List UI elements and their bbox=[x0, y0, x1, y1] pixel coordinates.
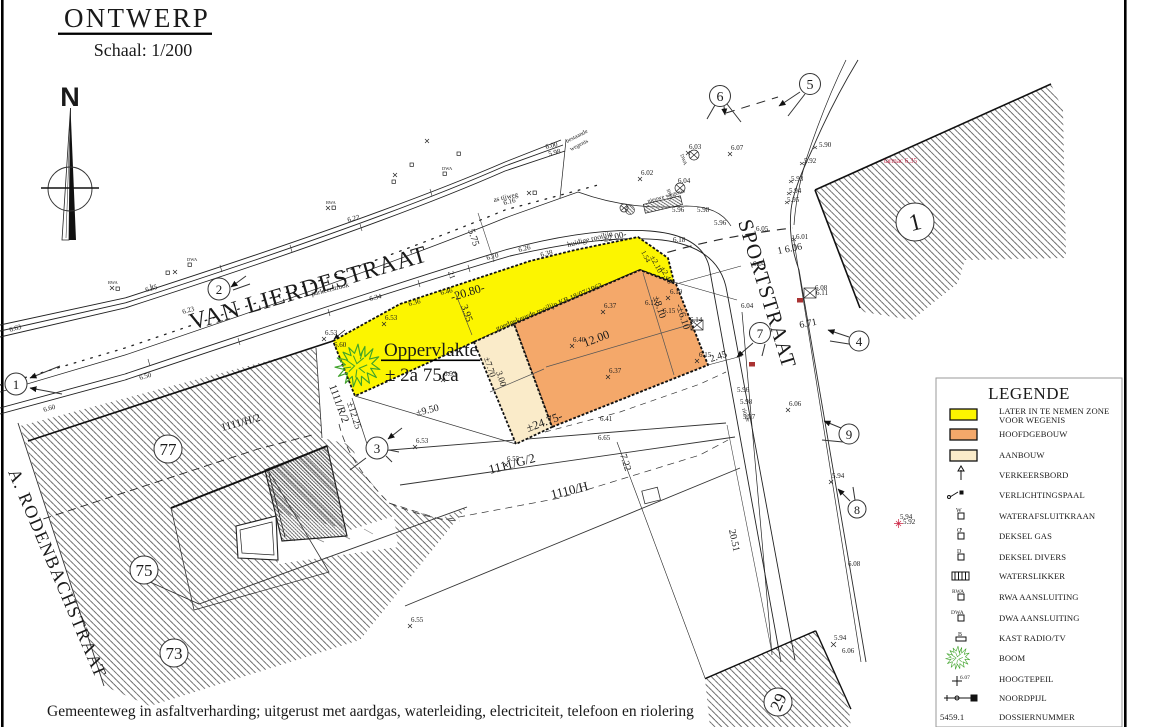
svg-text:RWA AANSLUITING: RWA AANSLUITING bbox=[999, 592, 1079, 602]
svg-text:6.08: 6.08 bbox=[848, 560, 861, 568]
svg-text:B: B bbox=[958, 632, 962, 638]
svg-text:5459.1: 5459.1 bbox=[940, 712, 964, 722]
svg-text:NOORDPIJL: NOORDPIJL bbox=[999, 693, 1047, 703]
svg-text:Gemeenteweg in asfaltverhardin: Gemeenteweg in asfaltverharding; uitgeru… bbox=[47, 703, 694, 720]
svg-text:DWA AANSLUITING: DWA AANSLUITING bbox=[999, 613, 1080, 623]
svg-text:5.94: 5.94 bbox=[832, 472, 845, 480]
svg-text:6.07: 6.07 bbox=[731, 144, 744, 152]
svg-text:HOOGTEPEIL: HOOGTEPEIL bbox=[999, 674, 1053, 684]
svg-text:6.53: 6.53 bbox=[325, 329, 338, 337]
svg-text:5.93: 5.93 bbox=[791, 175, 804, 183]
svg-text:75: 75 bbox=[136, 561, 153, 580]
svg-text:5.94: 5.94 bbox=[834, 634, 847, 642]
svg-text:VOOR WEGENIS: VOOR WEGENIS bbox=[999, 415, 1065, 425]
svg-text:VERLICHTINGSPAAL: VERLICHTINGSPAAL bbox=[999, 490, 1085, 500]
svg-text:77: 77 bbox=[160, 440, 178, 459]
svg-text:6.06: 6.06 bbox=[789, 400, 802, 408]
svg-text:5: 5 bbox=[807, 78, 814, 93]
svg-text:7: 7 bbox=[757, 326, 764, 341]
svg-text:5.96: 5.96 bbox=[672, 206, 685, 214]
svg-text:4: 4 bbox=[856, 334, 863, 349]
svg-text:6.15: 6.15 bbox=[699, 351, 712, 359]
svg-text:6.53: 6.53 bbox=[385, 314, 398, 322]
svg-text:AANBOUW: AANBOUW bbox=[999, 450, 1045, 460]
svg-text:73: 73 bbox=[166, 644, 183, 663]
svg-text:WATERSLIKKER: WATERSLIKKER bbox=[999, 571, 1065, 581]
svg-text:5.96: 5.96 bbox=[737, 386, 750, 394]
svg-text:6.05: 6.05 bbox=[756, 225, 769, 233]
svg-text:6.65: 6.65 bbox=[598, 434, 611, 442]
svg-text:WATERAFSLUITKRAAN: WATERAFSLUITKRAAN bbox=[999, 511, 1096, 521]
svg-text:1: 1 bbox=[13, 377, 20, 392]
svg-text:DEKSEL GAS: DEKSEL GAS bbox=[999, 531, 1052, 541]
svg-text:5.97: 5.97 bbox=[743, 413, 756, 421]
svg-text:DWA: DWA bbox=[951, 610, 964, 616]
svg-text:LEGENDE: LEGENDE bbox=[988, 384, 1070, 403]
svg-text:VERKEERSBORD: VERKEERSBORD bbox=[999, 470, 1068, 480]
svg-text:5.98: 5.98 bbox=[697, 206, 710, 214]
svg-text:5.94: 5.94 bbox=[789, 187, 802, 195]
svg-text:6.37: 6.37 bbox=[604, 302, 617, 310]
svg-text:tarmac 6.35: tarmac 6.35 bbox=[884, 157, 918, 165]
svg-text:Schaal: 1/200: Schaal: 1/200 bbox=[94, 40, 192, 60]
svg-text:DEKSEL DIVERS: DEKSEL DIVERS bbox=[999, 552, 1066, 562]
svg-text:6.55: 6.55 bbox=[411, 616, 424, 624]
svg-text:6.18: 6.18 bbox=[673, 236, 686, 244]
svg-text:6.04: 6.04 bbox=[753, 260, 766, 268]
svg-text:W: W bbox=[956, 508, 962, 514]
svg-text:6.03: 6.03 bbox=[689, 143, 702, 151]
svg-text:5.95: 5.95 bbox=[787, 196, 800, 204]
svg-text:6.15: 6.15 bbox=[663, 307, 676, 315]
svg-text:RWA: RWA bbox=[326, 200, 337, 205]
svg-text:ONTWERP: ONTWERP bbox=[64, 3, 210, 33]
svg-text:6.41: 6.41 bbox=[600, 415, 613, 423]
svg-text:DOSSIERNUMMER: DOSSIERNUMMER bbox=[999, 712, 1075, 722]
svg-text:5.92: 5.92 bbox=[903, 518, 916, 526]
svg-text:6: 6 bbox=[717, 90, 724, 105]
svg-text:3: 3 bbox=[374, 441, 381, 456]
svg-text:5.98: 5.98 bbox=[740, 398, 753, 406]
svg-text:D: D bbox=[957, 549, 962, 555]
svg-text:6.19: 6.19 bbox=[670, 288, 683, 296]
svg-text:KAST RADIO/TV: KAST RADIO/TV bbox=[999, 633, 1066, 643]
svg-text:6.60: 6.60 bbox=[334, 341, 347, 349]
svg-text:BOOM: BOOM bbox=[999, 653, 1025, 663]
svg-text:6.02: 6.02 bbox=[641, 169, 654, 177]
svg-text:6.37: 6.37 bbox=[609, 367, 622, 375]
svg-text:5.96: 5.96 bbox=[714, 219, 727, 227]
svg-text:DWA: DWA bbox=[442, 166, 453, 171]
svg-text:6.40: 6.40 bbox=[573, 336, 586, 344]
svg-text:N: N bbox=[60, 82, 80, 112]
svg-text:6.04: 6.04 bbox=[678, 177, 691, 185]
svg-text:6.04: 6.04 bbox=[741, 302, 754, 310]
svg-text:6.06: 6.06 bbox=[842, 647, 855, 655]
svg-text:9: 9 bbox=[846, 427, 853, 442]
svg-text:DWA: DWA bbox=[187, 257, 198, 262]
svg-text:6.01: 6.01 bbox=[796, 233, 809, 241]
svg-text:6.08: 6.08 bbox=[815, 284, 828, 292]
svg-text:RWA: RWA bbox=[108, 280, 119, 285]
svg-text:2: 2 bbox=[216, 282, 223, 297]
svg-text:RWA: RWA bbox=[952, 589, 964, 595]
svg-text:6.53: 6.53 bbox=[444, 370, 457, 378]
svg-text:6.07: 6.07 bbox=[960, 675, 970, 681]
svg-text:6.53: 6.53 bbox=[416, 437, 429, 445]
svg-text:8: 8 bbox=[854, 503, 860, 517]
svg-text:HOOFDGEBOUW: HOOFDGEBOUW bbox=[999, 429, 1068, 439]
svg-text:6.12: 6.12 bbox=[645, 299, 658, 307]
svg-text:5.92: 5.92 bbox=[804, 157, 817, 165]
svg-text:5.90: 5.90 bbox=[819, 141, 832, 149]
svg-text:Oppervlakte: Oppervlakte bbox=[384, 340, 478, 361]
svg-text:6.55: 6.55 bbox=[507, 455, 520, 463]
